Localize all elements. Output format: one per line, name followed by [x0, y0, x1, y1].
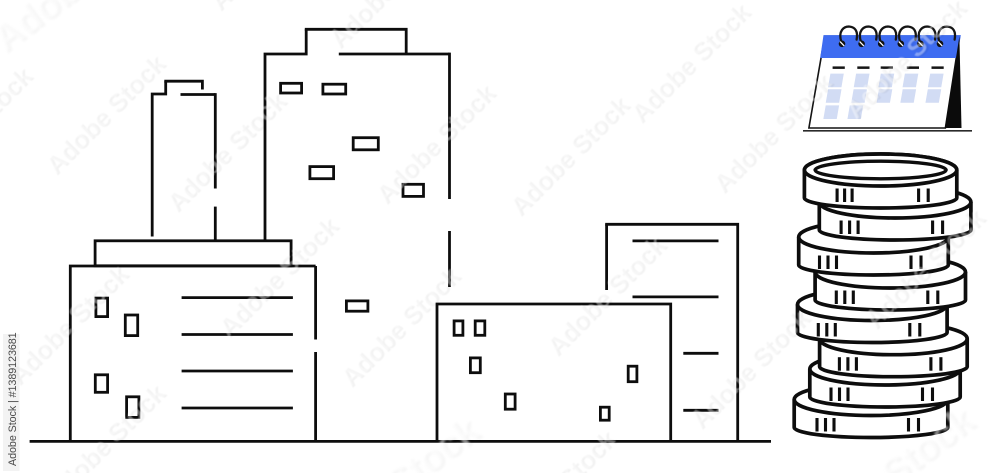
- svg-text:Adobe Stock | #1389123681: Adobe Stock | #1389123681: [7, 332, 19, 466]
